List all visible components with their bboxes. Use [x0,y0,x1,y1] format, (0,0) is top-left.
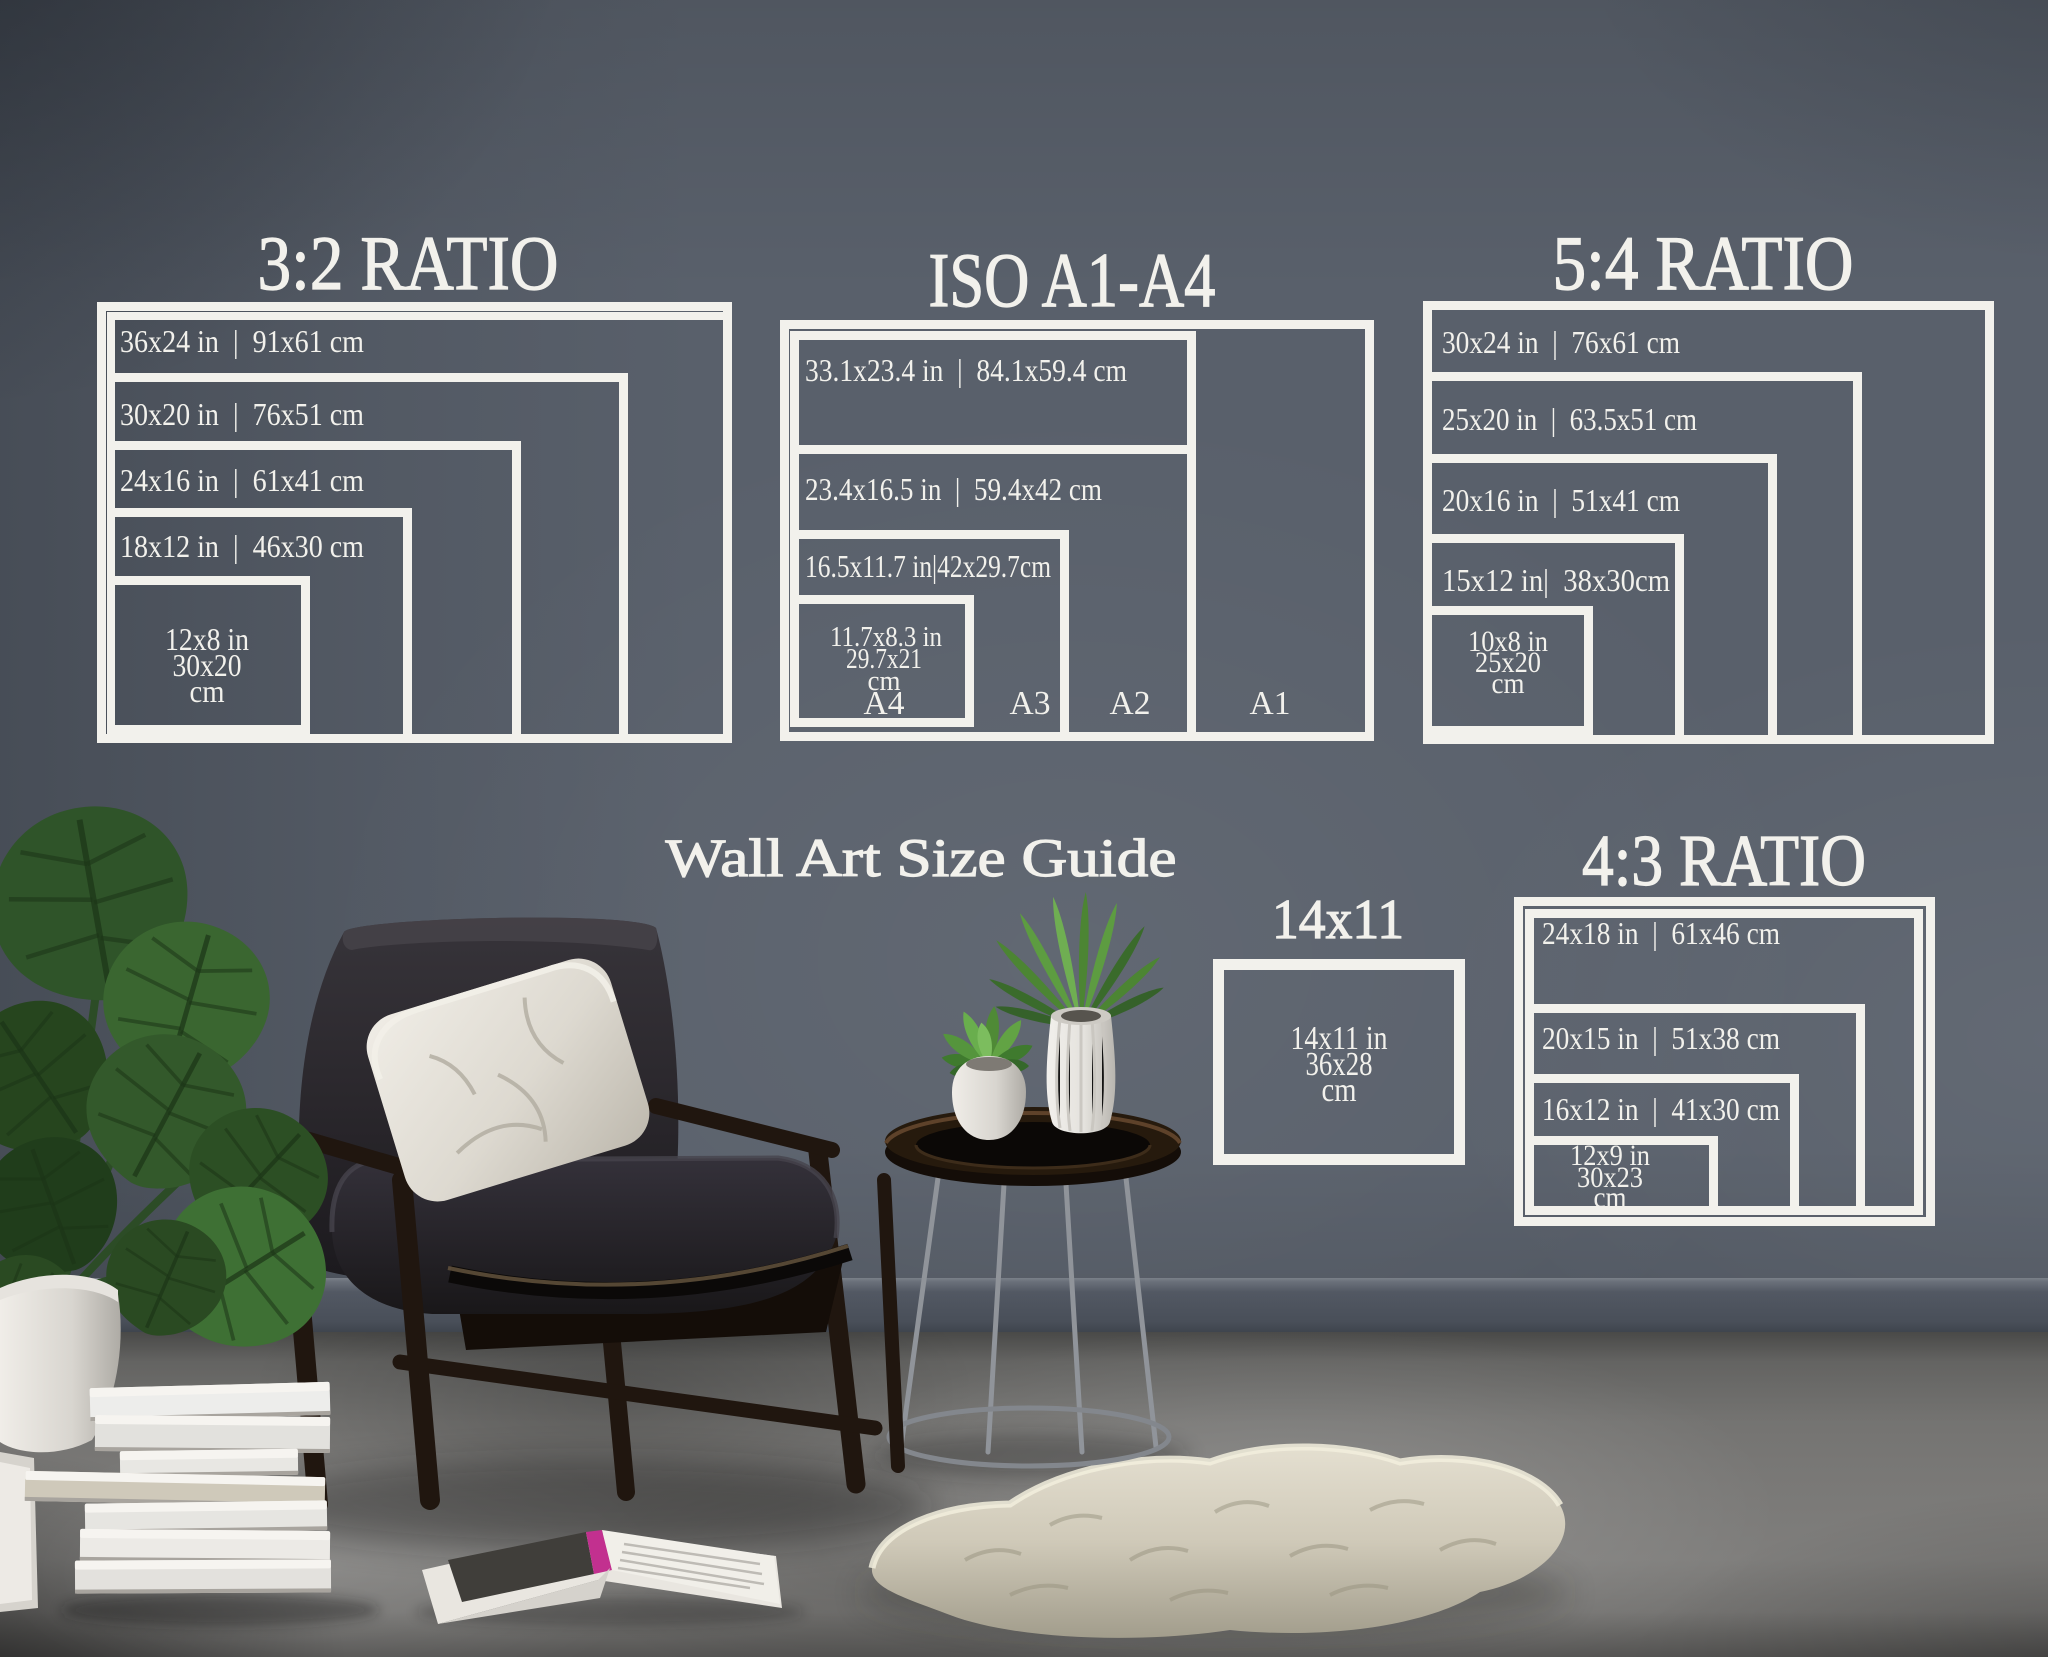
svg-text:A4: A4 [864,685,905,722]
svg-text:18x12 in | 46x30 cm: 18x12 in | 46x30 cm [120,528,364,564]
svg-text:A3: A3 [1010,685,1051,722]
svg-text:24x16 in | 61x41 cm: 24x16 in | 61x41 cm [120,462,364,498]
svg-text:cm: cm [1492,667,1525,700]
svg-text:ISO A1-A4: ISO A1-A4 [929,237,1216,323]
svg-text:cm: cm [1594,1181,1627,1214]
svg-text:14x11: 14x11 [1272,889,1404,951]
svg-text:16.5x11.7 in|42x29.7cm: 16.5x11.7 in|42x29.7cm [805,548,1051,584]
svg-text:5:4 RATIO: 5:4 RATIO [1553,220,1854,306]
svg-text:A2: A2 [1110,685,1151,722]
svg-text:25x20 in | 63.5x51 cm: 25x20 in | 63.5x51 cm [1442,401,1697,437]
svg-text:30x24 in | 76x61 cm: 30x24 in | 76x61 cm [1442,324,1680,360]
svg-text:23.4x16.5 in | 59.4x42 cm: 23.4x16.5 in | 59.4x42 cm [805,471,1102,507]
svg-text:3:2 RATIO: 3:2 RATIO [258,220,559,306]
svg-text:15x12 in| 38x30cm: 15x12 in| 38x30cm [1442,562,1670,598]
svg-text:A1: A1 [1250,685,1291,722]
svg-text:24x18 in | 61x46 cm: 24x18 in | 61x46 cm [1542,915,1780,951]
svg-text:Wall Art Size Guide: Wall Art Size Guide [666,828,1177,888]
svg-text:20x16 in | 51x41 cm: 20x16 in | 51x41 cm [1442,482,1680,518]
svg-text:20x15 in | 51x38 cm: 20x15 in | 51x38 cm [1542,1020,1780,1056]
svg-text:36x24 in | 91x61 cm: 36x24 in | 91x61 cm [120,323,364,359]
svg-text:cm: cm [1322,1072,1357,1109]
svg-text:33.1x23.4 in | 84.1x59.4 cm: 33.1x23.4 in | 84.1x59.4 cm [805,352,1127,388]
svg-text:30x20 in | 76x51 cm: 30x20 in | 76x51 cm [120,396,364,432]
svg-text:cm: cm [190,673,225,709]
svg-text:4:3 RATIO: 4:3 RATIO [1582,820,1866,901]
svg-text:16x12 in | 41x30 cm: 16x12 in | 41x30 cm [1542,1091,1780,1127]
